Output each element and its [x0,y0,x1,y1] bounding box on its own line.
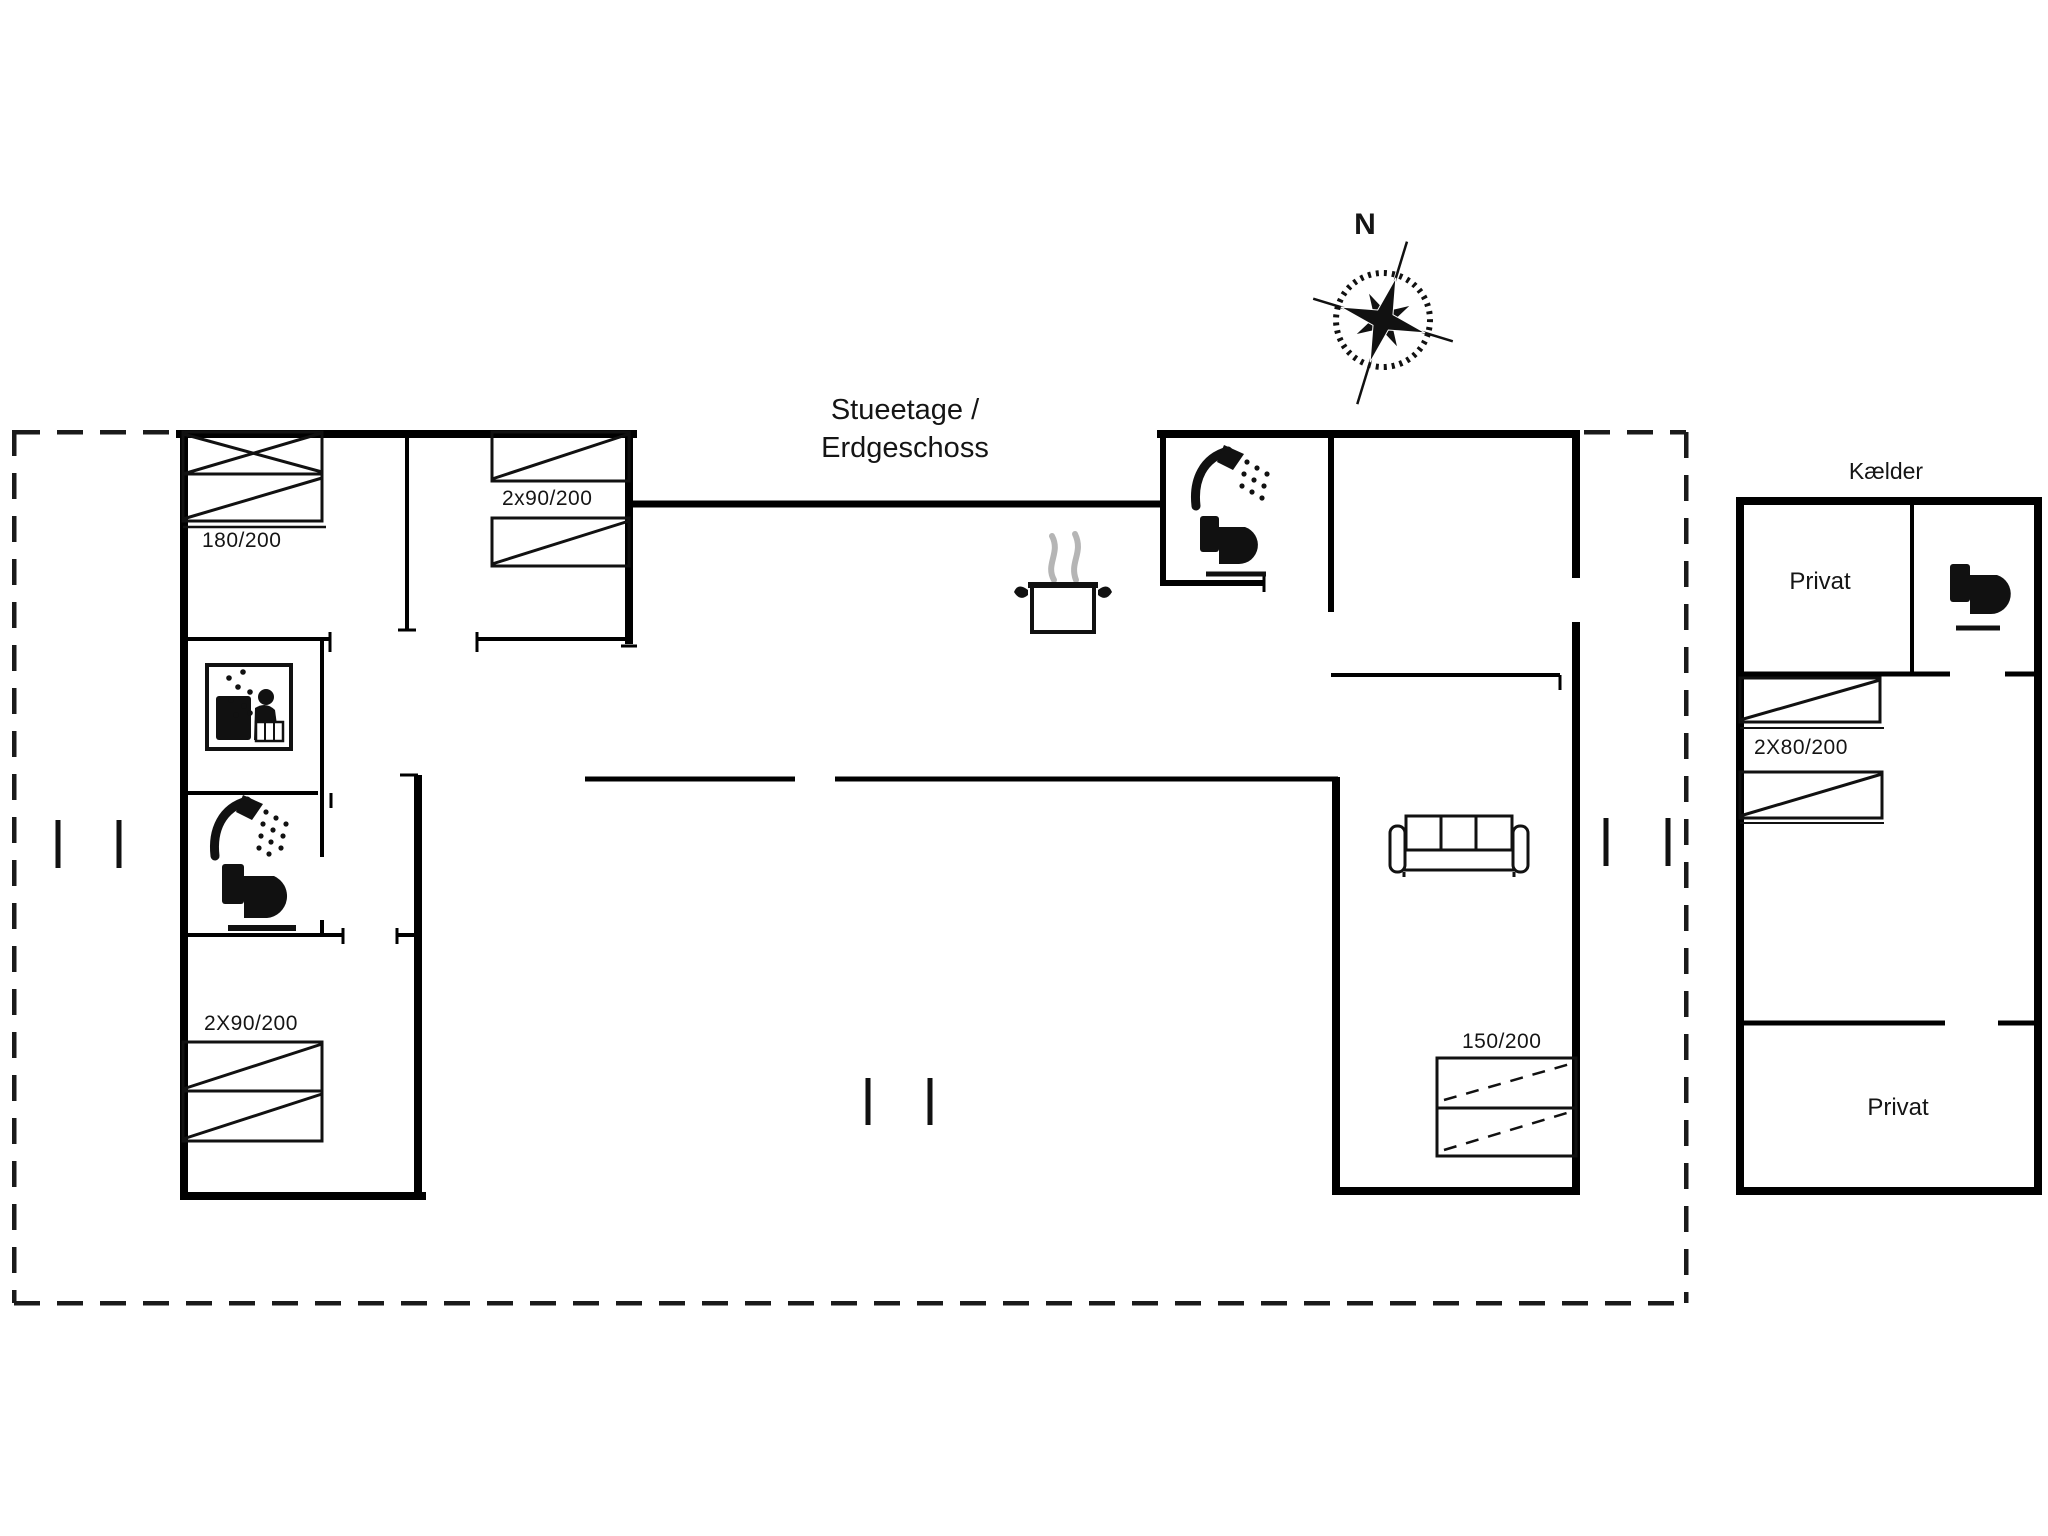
washing-machine-icon [207,665,291,749]
basement-privat-bottom-label: Privat [1838,1094,1958,1122]
floor-plan: N Stueetage / Erdgeschoss 180/200 2x90/2… [0,0,2048,1536]
sofa-icon [1390,816,1528,877]
floor-title-line1: Stueetage / [775,394,1035,427]
shower-icon [214,795,288,857]
floor-title-line2: Erdgeschoss [775,432,1035,465]
toilet-icon [1950,564,2011,628]
compass-north-label: N [1340,208,1390,242]
twin-beds-left [183,1042,322,1141]
shower-icon [1195,445,1269,506]
bed-label-2x90-200-left: 2X90/200 [204,1012,298,1036]
double-bed-180 [183,432,326,527]
toilet-icon [1200,516,1266,574]
basement-title: Kælder [1806,458,1966,485]
compass-rose-icon [1287,220,1476,425]
furniture-layer [0,0,2048,1536]
cooking-pot-icon [1014,534,1112,632]
bed-label-180-200: 180/200 [202,529,281,553]
toilet-icon [222,864,296,928]
bed-label-2x80-200: 2X80/200 [1754,736,1848,760]
bed-label-2x90-200-top: 2x90/200 [502,487,592,511]
double-bed-150 [1437,1058,1576,1156]
basement-privat-top-label: Privat [1760,568,1880,596]
bed-label-150-200: 150/200 [1462,1030,1541,1054]
